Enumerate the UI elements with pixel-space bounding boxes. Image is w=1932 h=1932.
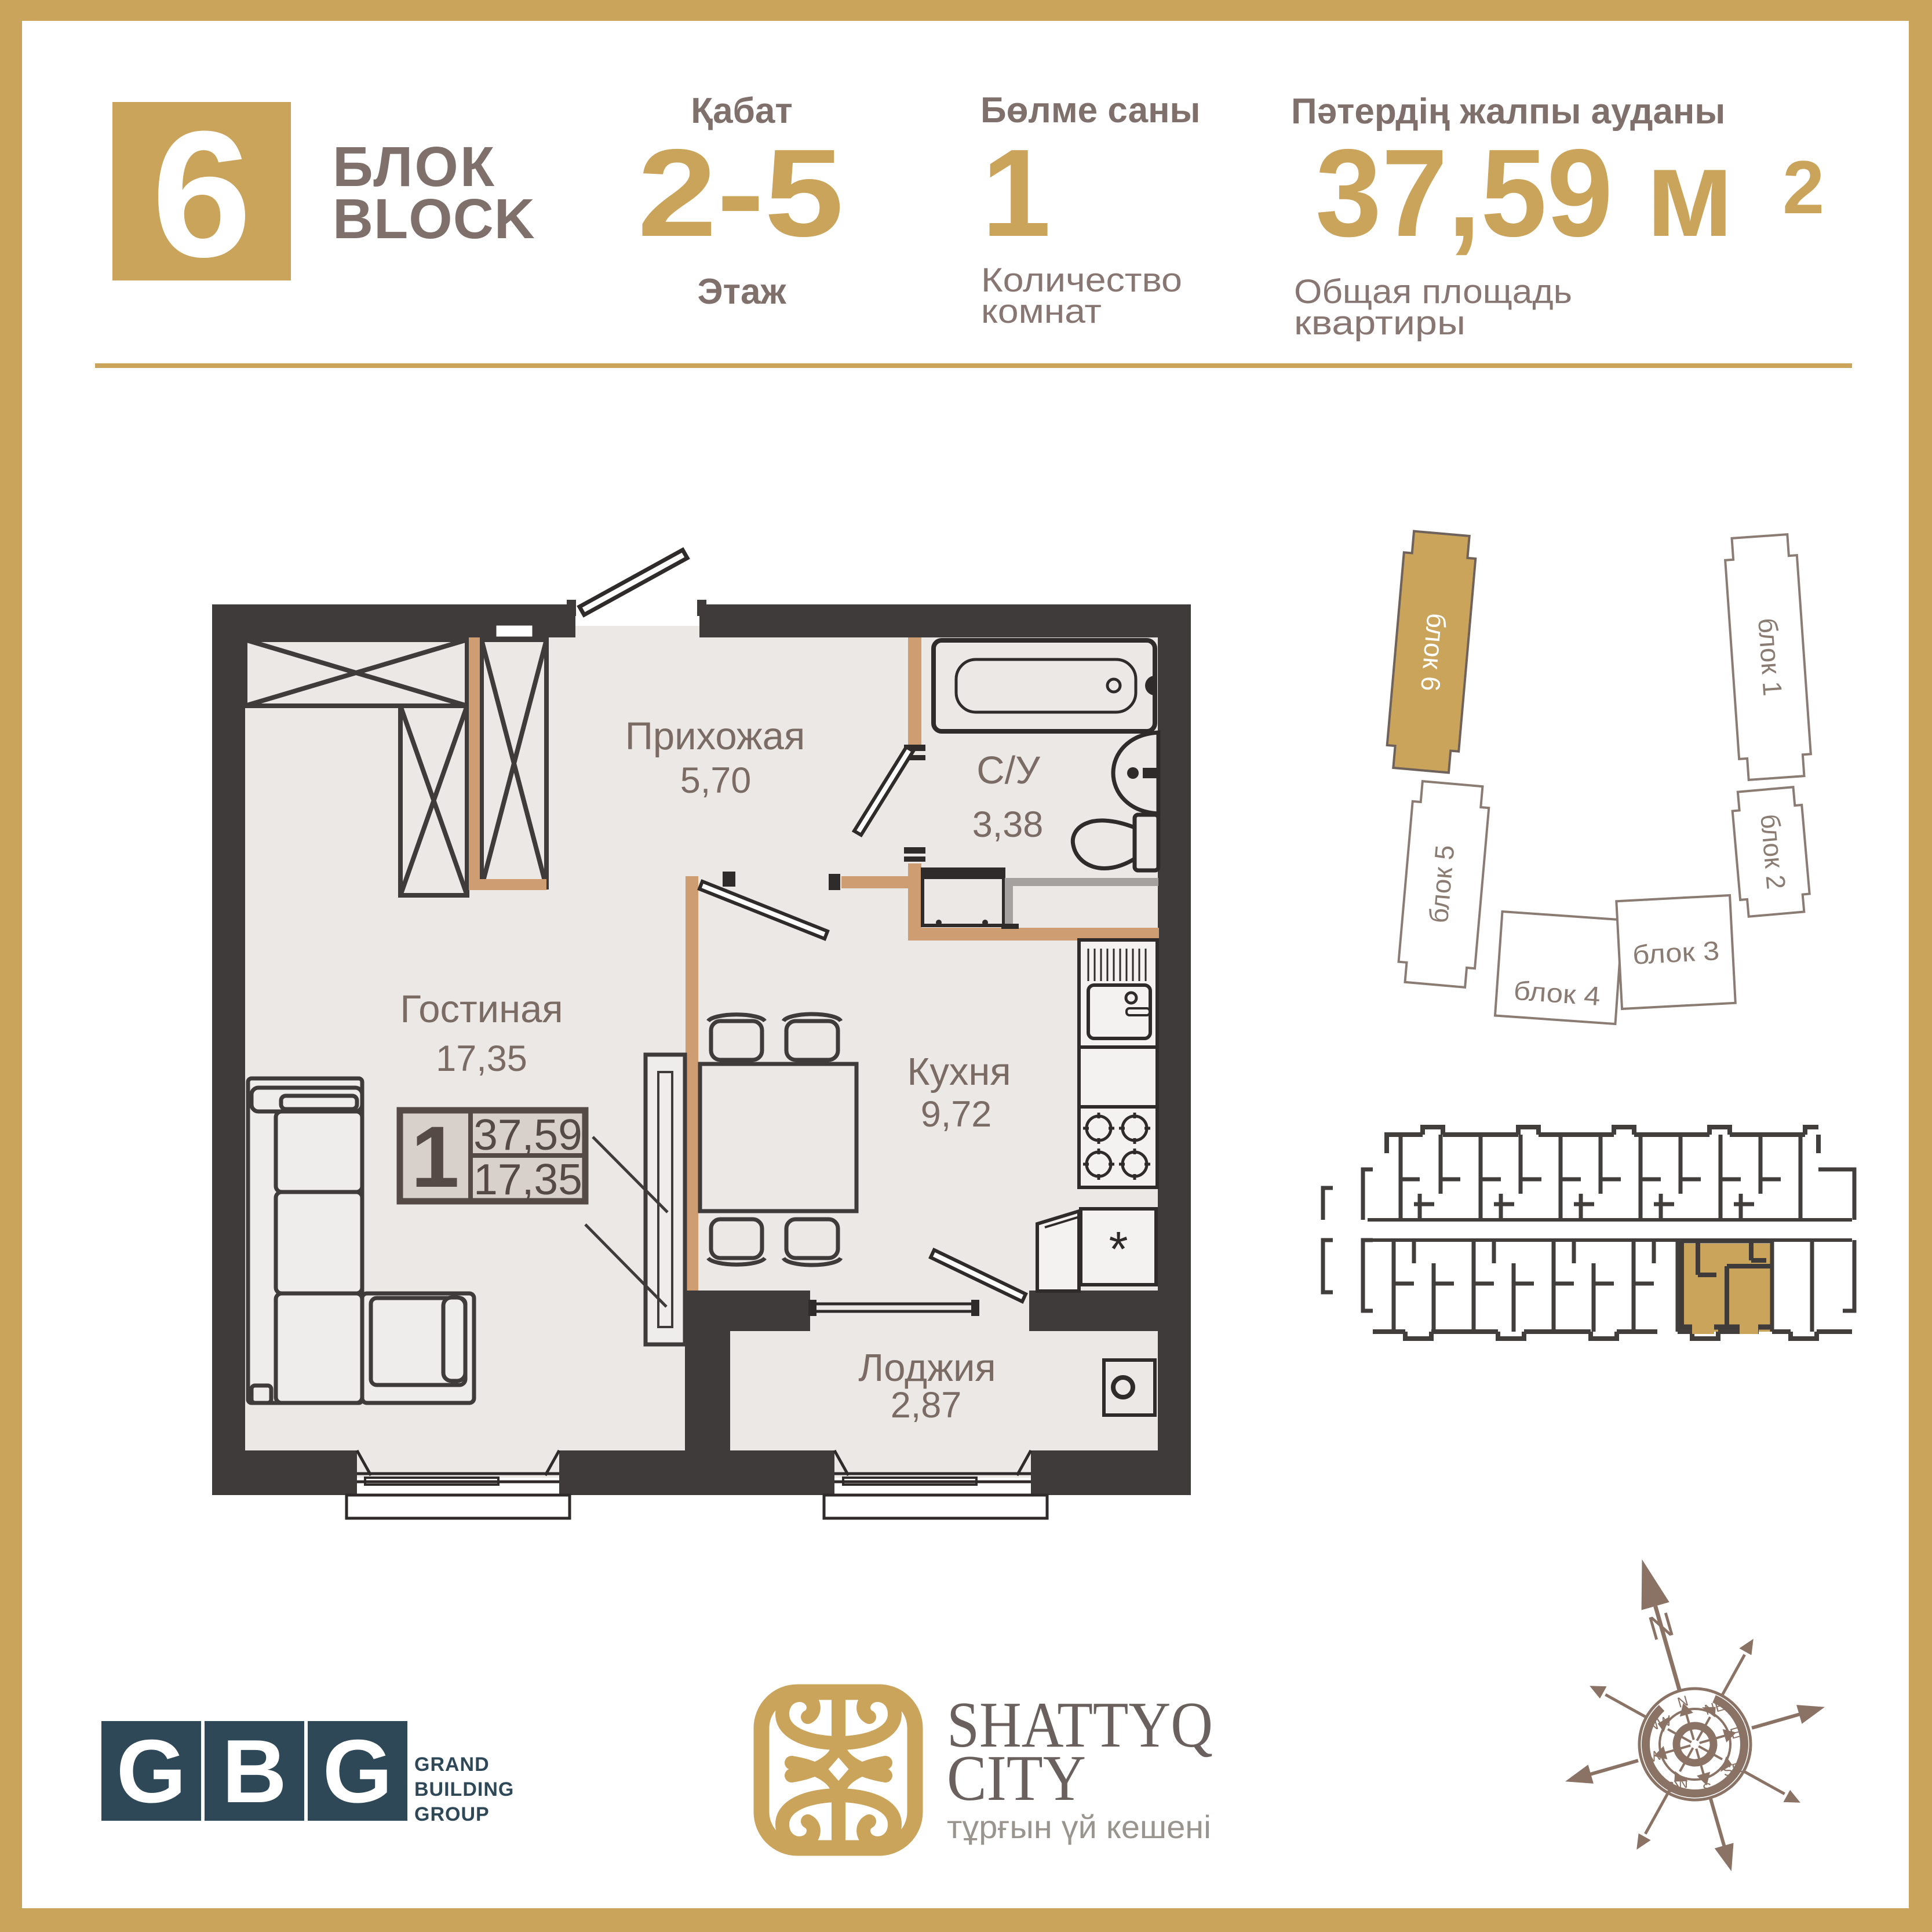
- svg-text:6: 6: [152, 93, 251, 294]
- svg-text:37,59 м: 37,59 м: [1315, 123, 1734, 263]
- svg-text:блок 1: блок 1: [1752, 617, 1788, 697]
- svg-text:С/У: С/У: [976, 749, 1040, 792]
- svg-text:1: 1: [982, 123, 1051, 263]
- svg-text:GROUP: GROUP: [414, 1803, 490, 1825]
- svg-text:37,59: 37,59: [473, 1110, 582, 1159]
- svg-text:2,87: 2,87: [891, 1385, 962, 1426]
- svg-text:17,35: 17,35: [473, 1155, 582, 1204]
- svg-text:G: G: [323, 1721, 393, 1821]
- svg-text:квартиры: квартиры: [1294, 304, 1466, 342]
- svg-text:*: *: [1109, 1222, 1128, 1277]
- svg-text:2-5: 2-5: [637, 123, 844, 263]
- svg-text:комнат: комнат: [981, 293, 1102, 330]
- svg-text:блок 3: блок 3: [1632, 935, 1720, 970]
- svg-text:17,35: 17,35: [436, 1038, 527, 1079]
- svg-text:блок 4: блок 4: [1512, 975, 1601, 1011]
- svg-text:тұрғын үй кешені: тұрғын үй кешені: [947, 1809, 1211, 1845]
- svg-text:Гостиная: Гостиная: [400, 987, 563, 1031]
- svg-text:2: 2: [1782, 145, 1824, 229]
- svg-text:Кухня: Кухня: [907, 1050, 1011, 1093]
- svg-text:BUILDING: BUILDING: [414, 1778, 514, 1800]
- svg-text:9,72: 9,72: [921, 1094, 992, 1135]
- svg-text:Прихожая: Прихожая: [625, 715, 805, 758]
- svg-text:Лоджия: Лоджия: [858, 1346, 996, 1390]
- svg-text:G: G: [116, 1721, 187, 1821]
- svg-text:B: B: [222, 1721, 287, 1821]
- svg-text:BLOCK: BLOCK: [333, 187, 535, 250]
- svg-text:Этаж: Этаж: [698, 272, 787, 312]
- svg-text:CITY: CITY: [947, 1743, 1086, 1814]
- svg-text:GRAND: GRAND: [414, 1754, 490, 1776]
- svg-text:3,38: 3,38: [972, 804, 1044, 845]
- svg-text:5,70: 5,70: [680, 760, 752, 801]
- svg-text:1: 1: [411, 1108, 459, 1205]
